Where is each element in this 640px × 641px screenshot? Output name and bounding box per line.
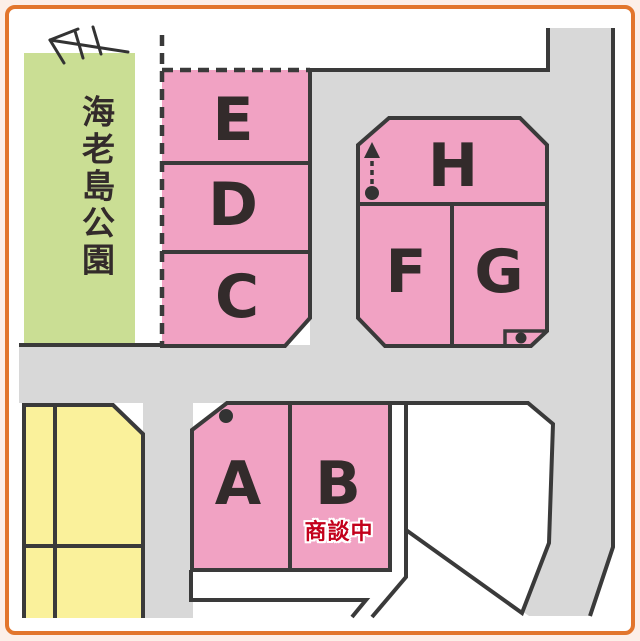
symbol-shaft bbox=[50, 40, 128, 52]
road-edge-top bbox=[310, 28, 548, 70]
lot-label-h: H bbox=[428, 136, 478, 196]
road-edge-bottom-left bbox=[191, 570, 366, 617]
white-lot-outline bbox=[406, 403, 553, 613]
road-vertical-left bbox=[143, 403, 193, 618]
lot-label-f: F bbox=[386, 242, 427, 302]
lot-label-g: G bbox=[474, 242, 523, 302]
marker-dot-a bbox=[219, 409, 233, 423]
marker-dot-h bbox=[365, 186, 379, 200]
lot-label-d: D bbox=[208, 175, 258, 235]
road-horizontal-band bbox=[19, 345, 613, 403]
lot-label-e: E bbox=[213, 90, 254, 150]
lot-label-c: C bbox=[215, 267, 259, 327]
lot-label-b: B bbox=[315, 454, 361, 514]
lot-label-a: A bbox=[215, 454, 261, 514]
status-badge-under-negotiation: 商談中 bbox=[304, 522, 373, 544]
marker-dot-g bbox=[516, 333, 527, 344]
site-plan-map: 海老島公園 E D C H F G A B 商談中 bbox=[0, 0, 640, 641]
yellow-block-fill bbox=[24, 405, 143, 618]
park-label: 海老島公園 bbox=[80, 95, 113, 280]
symbol-tick-2 bbox=[93, 27, 101, 54]
block-yellow bbox=[24, 405, 143, 618]
